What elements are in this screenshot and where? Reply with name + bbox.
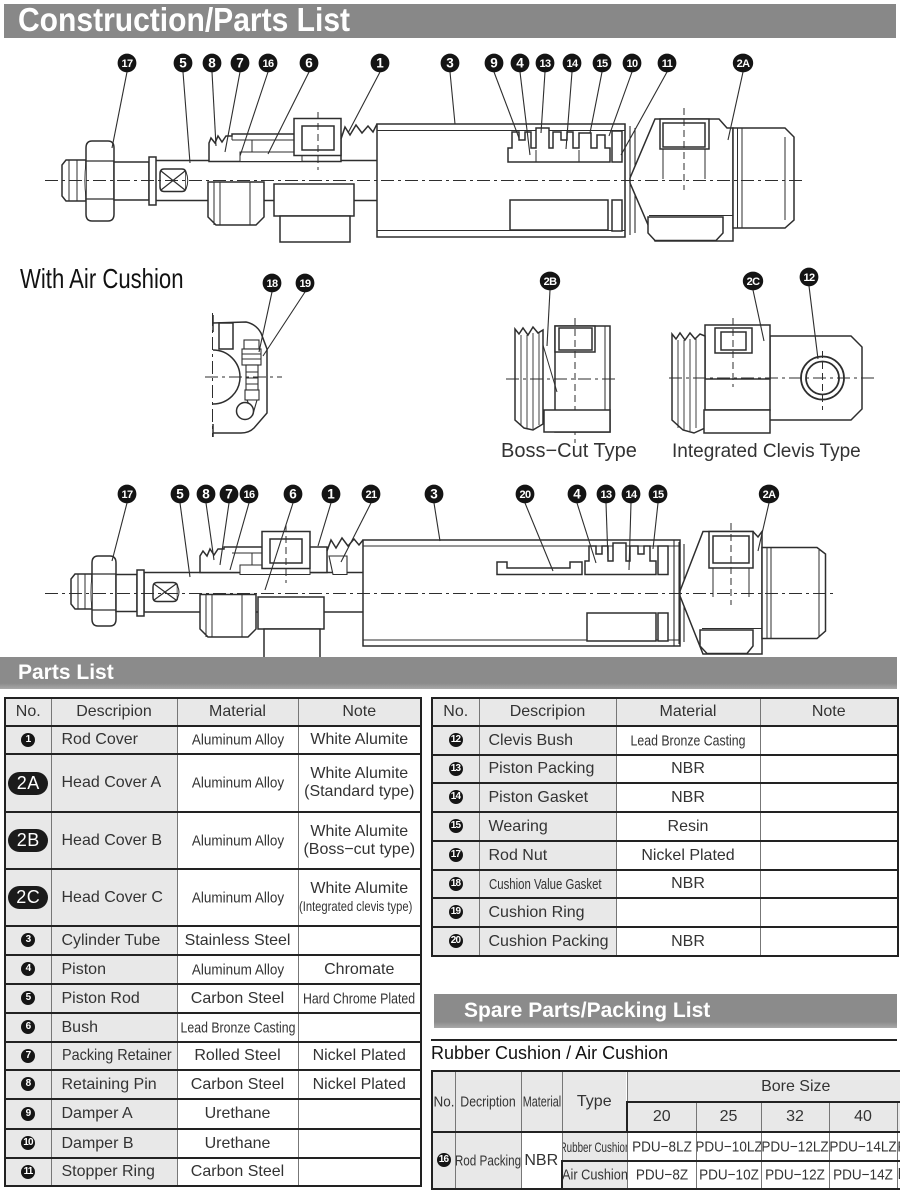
svg-text:11: 11 [662,58,673,70]
svg-text:15: 15 [652,489,664,501]
svg-text:5: 5 [179,56,187,71]
svg-text:15: 15 [596,58,608,70]
svg-text:16: 16 [243,489,255,501]
svg-text:3: 3 [430,487,438,502]
svg-text:13: 13 [600,489,612,501]
svg-text:10: 10 [626,58,638,70]
svg-text:8: 8 [202,487,210,502]
svg-text:2A: 2A [763,489,777,501]
svg-text:2B: 2B [544,276,558,288]
svg-text:21: 21 [365,489,377,501]
svg-text:14: 14 [566,58,579,70]
svg-text:2C: 2C [747,276,761,288]
svg-text:8: 8 [208,56,216,71]
svg-text:9: 9 [490,56,498,71]
svg-text:3: 3 [446,56,454,71]
svg-text:12: 12 [803,272,815,284]
svg-text:19: 19 [299,278,311,290]
svg-text:18: 18 [266,278,278,290]
svg-text:17: 17 [121,58,133,70]
svg-text:20: 20 [519,489,531,501]
svg-text:4: 4 [573,487,581,502]
svg-text:7: 7 [236,56,244,71]
svg-text:16: 16 [262,58,274,70]
svg-text:6: 6 [289,487,297,502]
svg-text:1: 1 [327,487,335,502]
svg-text:14: 14 [625,489,638,501]
svg-text:13: 13 [539,58,551,70]
svg-text:5: 5 [176,487,184,502]
svg-text:2A: 2A [737,58,751,70]
svg-text:6: 6 [305,56,313,71]
svg-text:1: 1 [376,56,384,71]
svg-text:17: 17 [121,489,133,501]
svg-text:4: 4 [516,56,524,71]
svg-text:7: 7 [225,487,233,502]
